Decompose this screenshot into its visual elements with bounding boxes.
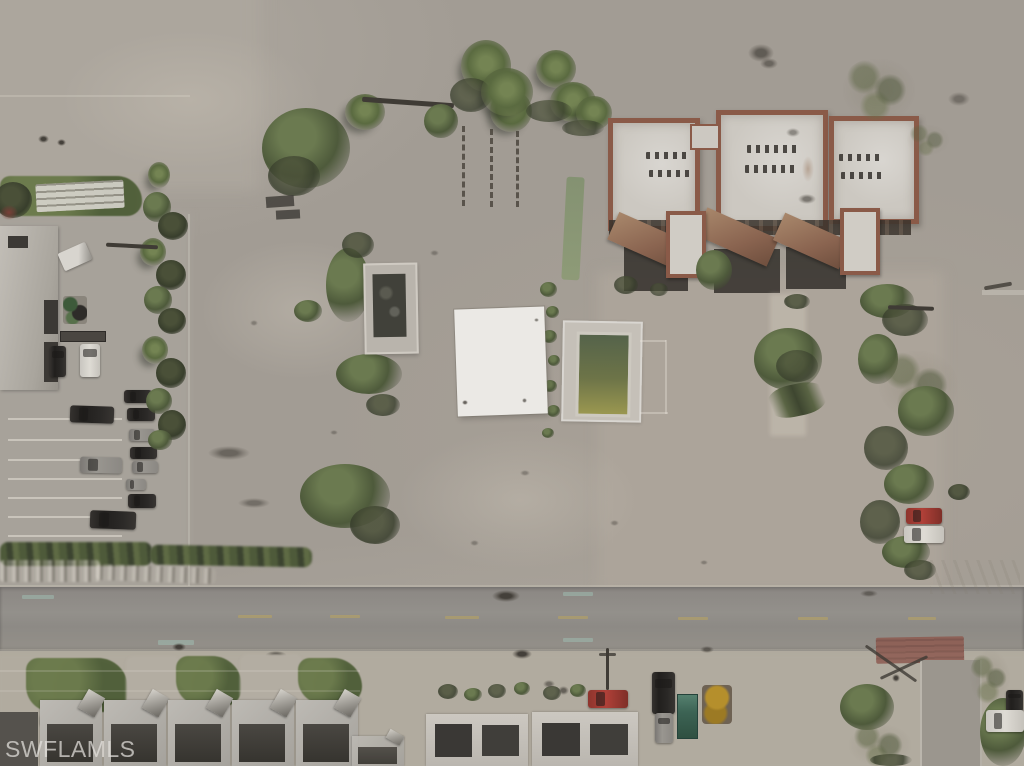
lane-marking	[563, 592, 593, 596]
palm-shadow	[526, 100, 572, 122]
white-slab	[454, 306, 548, 416]
vegetation-clump	[148, 430, 172, 450]
ground-speck	[610, 520, 619, 526]
post-line	[490, 129, 497, 207]
ground-speck	[250, 320, 258, 326]
left-building-unit	[44, 300, 58, 334]
roof-debris	[798, 194, 816, 204]
ground-debris	[558, 686, 569, 695]
townhouse-roof	[296, 700, 358, 766]
shrub-dot	[547, 405, 560, 417]
beach-house-roof	[532, 712, 638, 766]
tire-tracks	[930, 560, 1020, 594]
ground-debris	[948, 92, 970, 106]
ground-speck	[470, 540, 479, 546]
vegetation-shadow	[342, 232, 374, 258]
parked-car	[130, 447, 157, 459]
roof-stain	[802, 156, 814, 182]
vegetation-clump	[898, 386, 954, 436]
parking-stripe	[8, 535, 122, 537]
ground-speck	[330, 430, 338, 435]
parked-car	[132, 461, 158, 473]
red-flower-bush	[0, 205, 18, 220]
parked-car	[126, 479, 146, 490]
parked-car	[70, 405, 115, 424]
rooftop-chair-row	[649, 170, 691, 177]
lot-boundary-line	[188, 214, 190, 586]
post-line	[462, 126, 469, 206]
parking-stripe	[8, 478, 122, 480]
center-line-dash	[908, 617, 936, 620]
pool-water-green	[575, 332, 631, 418]
center-line-dash	[330, 615, 360, 618]
vegetation-shadow	[350, 506, 400, 544]
parked-car	[50, 346, 66, 377]
townhouse-roof	[352, 736, 404, 766]
lounge-chair-row	[35, 180, 124, 213]
debris-pile	[948, 484, 970, 500]
lane-marking	[22, 595, 54, 599]
watermark-text: SWFLAMLS	[5, 736, 136, 763]
scooter-on-road	[172, 643, 186, 651]
street-pole-crossarm	[599, 653, 616, 656]
debris-spot	[57, 139, 66, 146]
condo-roof-connector	[690, 124, 720, 150]
shrub-dot	[546, 306, 559, 318]
road-debris	[512, 649, 532, 659]
slab-speck	[522, 398, 527, 403]
palm-tuft	[570, 684, 586, 697]
vegetation-clump	[696, 250, 732, 290]
red-pickup-truck	[588, 690, 628, 708]
parking-stripe	[8, 497, 122, 499]
red-car	[906, 508, 942, 524]
pool-fence	[665, 340, 667, 414]
palm-shadow	[562, 120, 604, 136]
white-van	[80, 344, 100, 377]
shrub-dot	[542, 428, 554, 438]
vegetation-shadow	[366, 394, 400, 416]
dark-suv	[652, 672, 675, 714]
vegetation-clump	[336, 354, 402, 394]
ground-debris	[238, 498, 270, 508]
pool-fence	[640, 412, 668, 414]
vegetation-shadow	[268, 156, 320, 196]
beach-house-roof	[426, 714, 528, 766]
center-line-dash	[445, 616, 479, 619]
vegetation-shadow	[614, 276, 638, 294]
branch-debris	[906, 124, 950, 156]
parking-stripe	[8, 439, 122, 441]
vegetation-clump	[424, 104, 458, 138]
ground-debris	[208, 446, 250, 460]
vegetation-shadow	[864, 426, 908, 470]
lane-marking	[563, 638, 593, 642]
lot-boundary-line	[0, 95, 190, 97]
rubble-band	[0, 560, 100, 582]
ground-speck	[430, 250, 439, 256]
white-car	[904, 526, 944, 543]
utility-wire	[0, 690, 360, 692]
parked-car	[80, 457, 122, 474]
palm-tuft	[488, 684, 506, 698]
townhouse-roof	[232, 700, 294, 766]
seawall-line	[982, 290, 1024, 295]
sand-blotch	[400, 430, 640, 570]
road-debris	[860, 590, 878, 597]
left-building-vent	[8, 236, 28, 248]
center-line-dash	[238, 615, 272, 618]
utility-equipment	[63, 296, 87, 324]
post-line	[516, 131, 523, 207]
elevator-tower	[840, 208, 880, 275]
trellis-debris	[266, 195, 295, 208]
branch-debris	[842, 58, 916, 122]
hedge-row	[150, 545, 312, 568]
center-line-dash	[798, 617, 828, 620]
shrub-dot	[548, 355, 560, 366]
parked-car	[1006, 690, 1023, 712]
debris-spot	[38, 135, 49, 143]
yellow-excavator	[702, 685, 732, 724]
vegetation-clump	[294, 300, 322, 322]
palm-tree	[148, 162, 170, 188]
roof-debris	[760, 58, 778, 69]
green-mat	[561, 177, 584, 281]
parked-car	[90, 510, 137, 530]
rooftop-chair-row	[646, 152, 688, 159]
pool-fence	[640, 340, 666, 342]
road-debris	[700, 646, 714, 653]
palm-tuft	[514, 682, 530, 695]
vegetation-shadow	[776, 350, 818, 382]
center-line-dash	[678, 617, 708, 620]
old-pool-water	[372, 274, 406, 338]
palm-tuft	[438, 684, 458, 699]
vegetation-shadow	[870, 754, 912, 766]
vegetation-shadow	[784, 294, 810, 309]
teal-dumpster	[677, 694, 698, 739]
ground-debris	[543, 680, 555, 688]
townhouse-roof	[168, 700, 230, 766]
utility-pole	[892, 674, 900, 682]
vegetation-shadow	[158, 308, 186, 334]
utility-wire	[0, 670, 360, 672]
rooftop-chair-row	[745, 165, 795, 173]
ground-speck	[520, 470, 530, 476]
ground-speck	[700, 560, 708, 565]
trailer	[60, 331, 106, 342]
vegetation-shadow	[650, 283, 668, 296]
trellis-debris	[276, 209, 300, 219]
parked-car	[986, 710, 1024, 732]
road-edge-line	[0, 585, 1024, 587]
parked-car	[128, 494, 156, 508]
vegetation-shadow	[156, 358, 186, 388]
rooftop-chair-row	[839, 154, 881, 161]
slab-speck	[534, 318, 539, 322]
slab-speck	[462, 400, 468, 405]
center-line-dash	[558, 616, 588, 619]
road-debris	[492, 590, 520, 602]
roof-debris	[786, 128, 800, 137]
rooftop-chair-row	[747, 145, 797, 153]
rooftop-chair-row	[841, 172, 883, 179]
palm-tuft	[464, 688, 482, 701]
gray-car	[655, 713, 673, 743]
shrub-dot	[540, 282, 557, 297]
vegetation-clump	[884, 464, 934, 504]
aerial-photo-beachfront-lot: SWFLAMLS	[0, 0, 1024, 766]
vegetation-shadow	[158, 212, 188, 240]
